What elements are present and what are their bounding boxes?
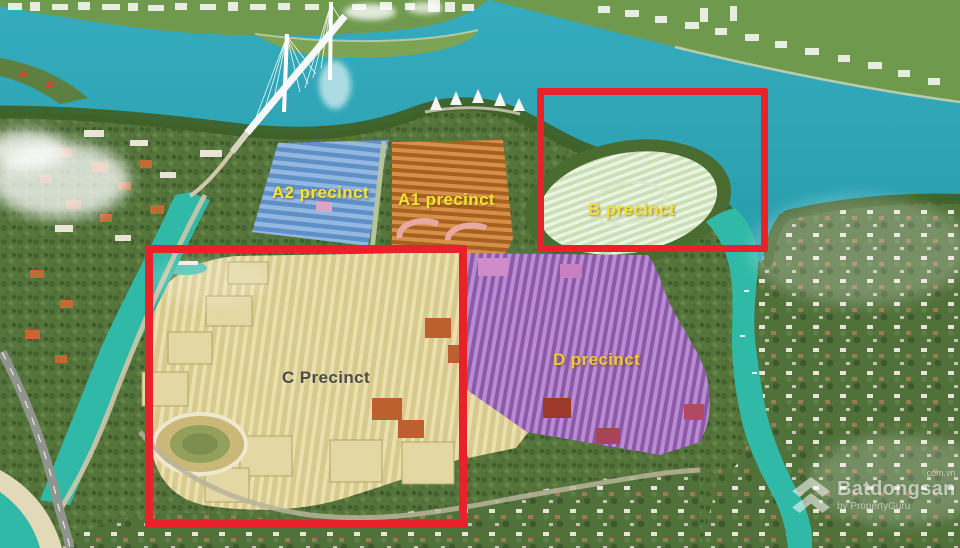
c-precinct-arena (154, 414, 246, 474)
scene-canvas (0, 0, 960, 548)
masterplan-render: A2 precinct A1 precinct B precinct C Pre… (0, 0, 960, 548)
